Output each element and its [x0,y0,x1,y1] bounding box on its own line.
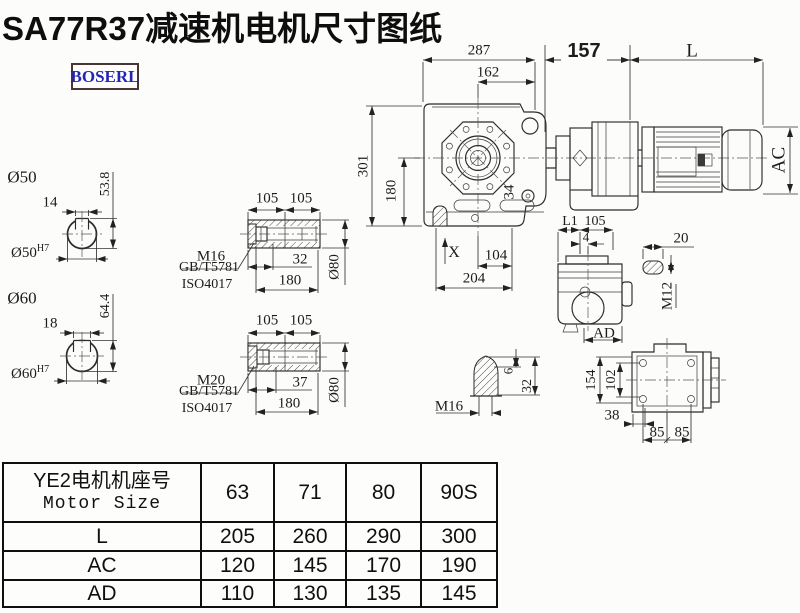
dim-105-side-label: 105 [585,215,606,229]
row-label: L [3,522,201,551]
hsb-standard1-label: GB/T5781 [179,385,239,399]
cell: 205 [201,522,274,551]
motor-size-table: YE2电机机座号 Motor Size 63 71 80 90S L 205 2… [2,462,498,608]
hsb-37-label: 37 [293,376,308,391]
dim-102-label: 102 [605,370,619,391]
dim-32-plug-label: 32 [521,379,535,393]
front-view-lines [366,45,798,291]
hsa-180-label: 180 [279,274,302,289]
hsa-105-left-label: 105 [256,192,279,207]
cell: 130 [274,580,346,607]
col-63: 63 [201,463,274,522]
cell: 290 [346,522,421,551]
shaft-60-title: Ø60 [7,290,36,307]
dim-180-main-label: 180 [385,180,400,203]
cell: 170 [346,551,421,580]
hsa-32-label: 32 [293,253,308,268]
hsa-105-right-label: 105 [290,192,313,207]
dim-4-label: 4 [583,231,590,244]
dim-104-label: 104 [485,249,508,264]
col-80: 80 [346,463,421,522]
cell: 260 [274,522,346,551]
hsa-dia-label: Ø80 [328,254,343,280]
table-row-AD: AD 110 130 135 145 [3,580,497,607]
dim-L-label: L [686,42,698,61]
header-en: Motor Size [4,494,200,516]
table-row-L: L 205 260 290 300 [3,522,497,551]
brand-logo: BOSERL [71,63,139,90]
row-label: AC [3,551,201,580]
dim-AC-label: AC [770,147,789,173]
header-cn: YE2电机机座号 [4,469,200,494]
dim-64-4-label: 64.4 [99,294,113,319]
motor-size-header-cell: YE2电机机座号 Motor Size [3,463,201,522]
cell: 190 [421,551,497,580]
hsb-180-label: 180 [278,397,301,412]
cell: 120 [201,551,274,580]
dim-53-8-label: 53.8 [99,172,113,197]
row-label: AD [3,580,201,607]
cell: 300 [421,522,497,551]
hsa-standard2-label: ISO4017 [182,278,233,292]
dim-18-label: 18 [43,317,58,332]
dim-20-label: 20 [674,232,689,247]
hsb-105-right-label: 105 [290,314,313,329]
dim-X-label: X [448,245,460,261]
cell: 110 [201,580,274,607]
table-header-row: YE2电机机座号 Motor Size 63 71 80 90S [3,463,497,522]
dim-85-right-label: 85 [675,426,690,441]
shaft-50-title: Ø50 [7,169,36,186]
col-90S: 90S [421,463,497,522]
bore-60-label: Ø60H7 [11,365,49,382]
dim-38-label: 38 [605,409,620,424]
bore-50-label: Ø50H7 [11,244,49,261]
hsb-dia-label: Ø80 [328,377,343,403]
cell: 145 [274,551,346,580]
dim-AD-label: AD [593,327,615,342]
hsb-105-left-label: 105 [256,314,279,329]
hsb-standard2-label: ISO4017 [182,402,233,416]
hsa-standard1-label: GB/T5781 [179,261,239,275]
dim-204-label: 204 [463,272,486,287]
cell: 145 [421,580,497,607]
dim-157-label: 157 [567,41,600,61]
col-71: 71 [274,463,346,522]
dim-162-label: 162 [477,66,500,81]
dim-85-left-label: 85 [650,426,665,441]
thread-M12-label: M12 [661,282,676,310]
dim-301-label: 301 [357,155,372,178]
thread-M16-label: M16 [435,400,463,415]
dim-L1-label: L1 [562,215,578,229]
dim-154-label: 154 [585,370,599,391]
dim-6-label: 6 [502,368,515,375]
dim-34-label: 34 [503,185,518,200]
table-row-AC: AC 120 145 170 190 [3,551,497,580]
dim-14-label: 14 [43,196,58,211]
dim-287-label: 287 [468,44,491,59]
cell: 135 [346,580,421,607]
page-title: SA77R37减速机电机尺寸图纸 [2,2,442,50]
